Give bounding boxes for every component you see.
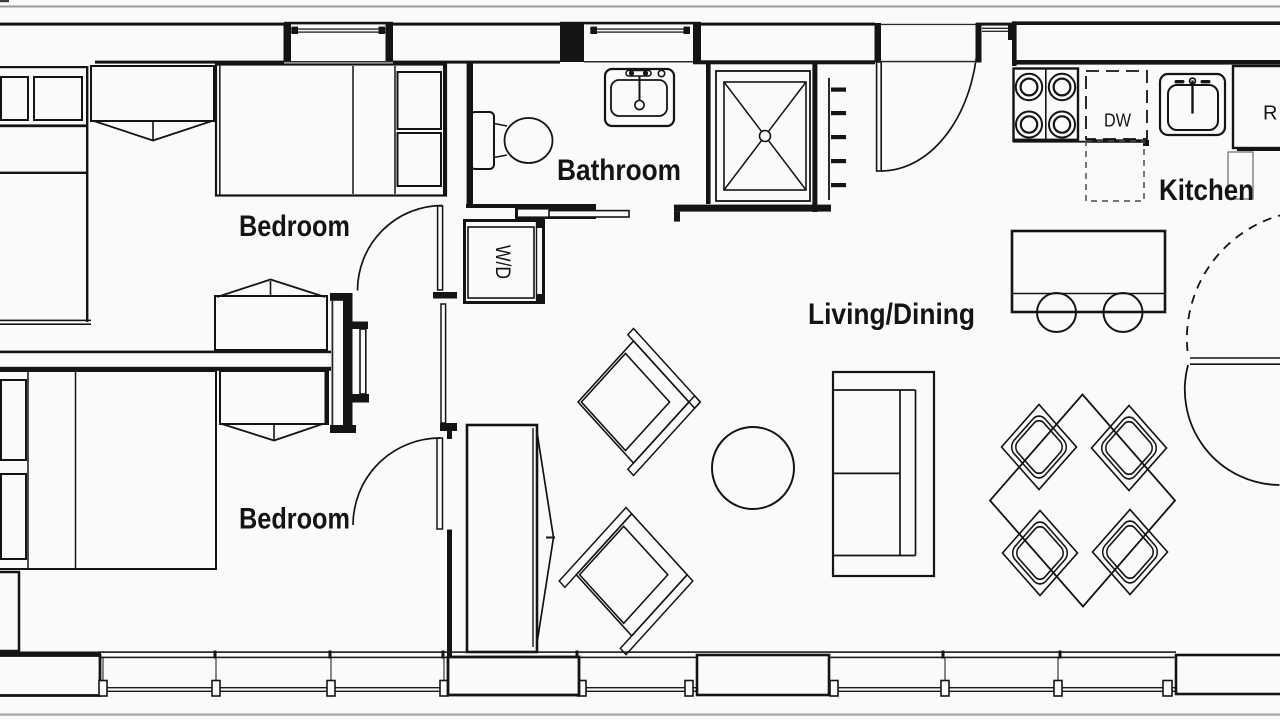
svg-text:Kitchen: Kitchen xyxy=(1159,174,1254,207)
svg-text:Bedroom: Bedroom xyxy=(239,210,350,243)
svg-text:W/D: W/D xyxy=(491,245,514,279)
svg-text:Bathroom: Bathroom xyxy=(557,154,681,187)
svg-text:Living/Dining: Living/Dining xyxy=(808,298,975,331)
svg-text:R: R xyxy=(1263,103,1277,125)
svg-text:DW: DW xyxy=(1104,111,1131,131)
svg-text:Bedroom: Bedroom xyxy=(239,503,350,536)
